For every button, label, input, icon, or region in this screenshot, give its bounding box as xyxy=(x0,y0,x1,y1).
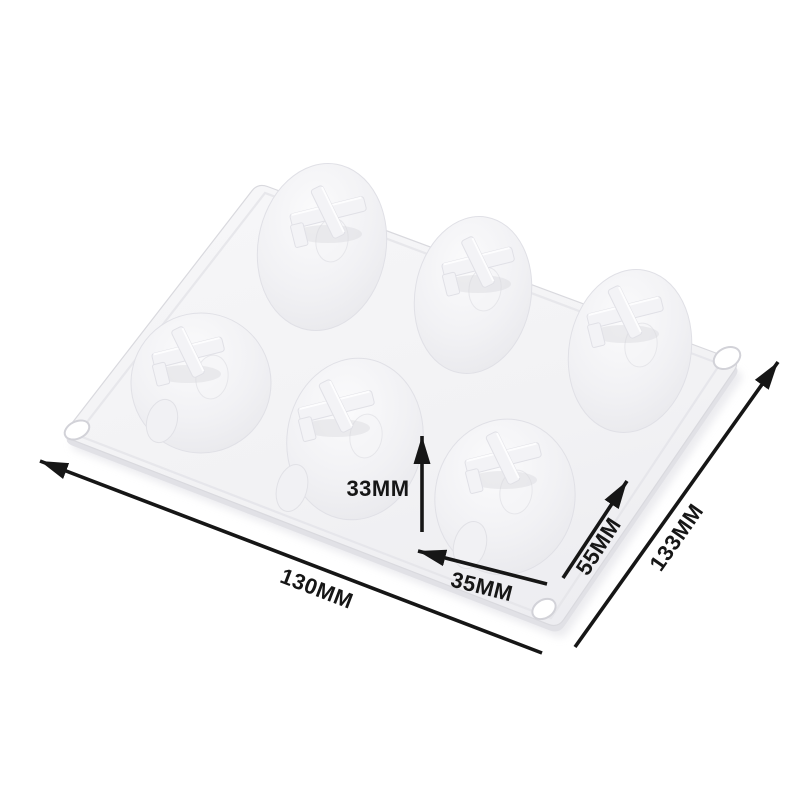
dimension-label-130mm: 130MM xyxy=(277,563,357,614)
dimension-label-33mm: 33MM xyxy=(346,476,409,501)
mold-dimension-figure: 130MM 133MM 33MM 35MM 55MM xyxy=(0,0,800,800)
product-image: 130MM 133MM 33MM 35MM 55MM xyxy=(0,0,800,800)
silicone-mold-tray xyxy=(62,153,744,637)
